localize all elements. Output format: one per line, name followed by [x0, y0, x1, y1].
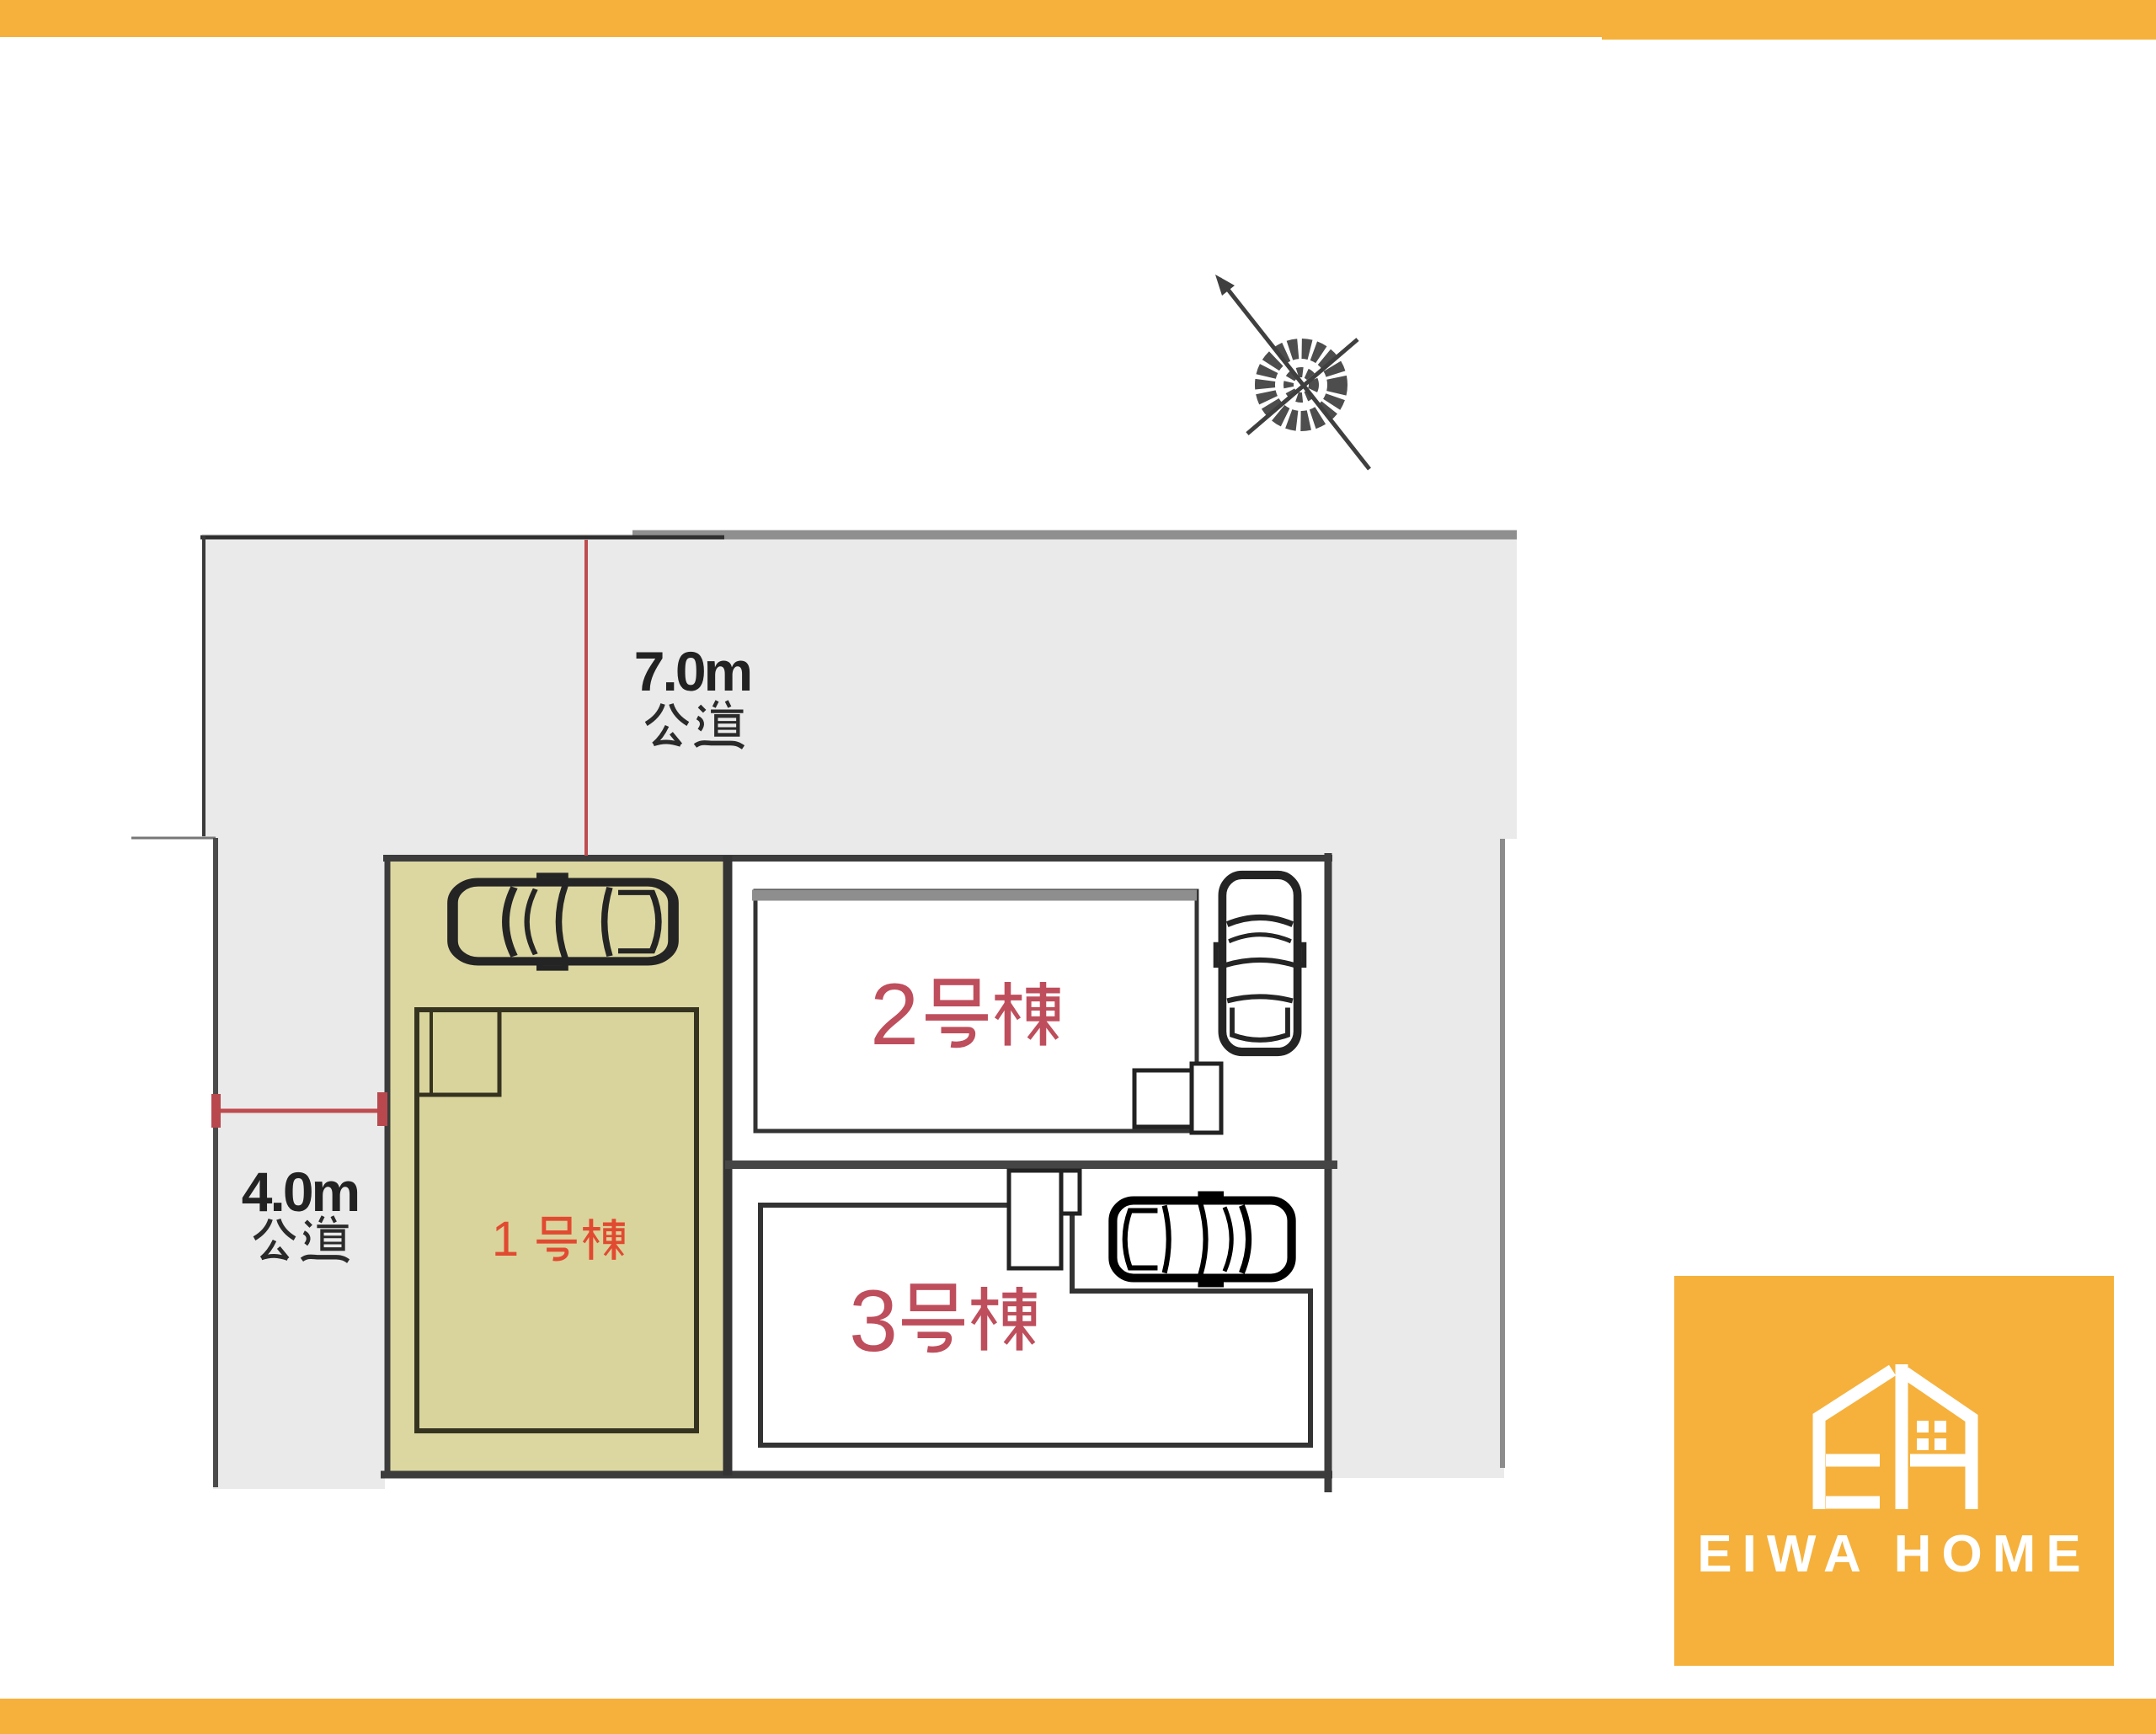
svg-text:EIWA HOME: EIWA HOME — [1697, 1525, 2090, 1583]
svg-text:7.0m: 7.0m — [634, 640, 750, 702]
svg-text:2: 2 — [870, 966, 919, 1064]
svg-text:1: 1 — [492, 1212, 519, 1267]
svg-text:3: 3 — [849, 1272, 898, 1370]
svg-text:4.0m: 4.0m — [242, 1160, 358, 1223]
